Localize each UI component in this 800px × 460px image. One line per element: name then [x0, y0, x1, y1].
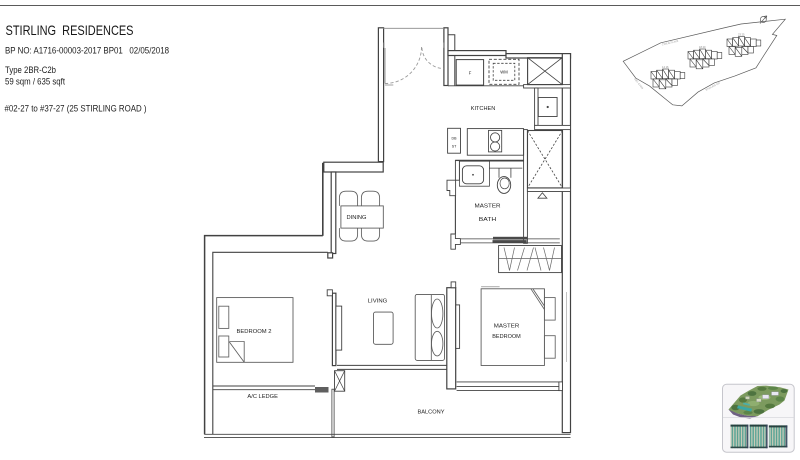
svg-text:MEI CHIN: MEI CHIN: [633, 77, 644, 90]
svg-text:BEDROOM 2: BEDROOM 2: [237, 329, 272, 335]
svg-text:BEDROOM: BEDROOM: [492, 334, 521, 340]
svg-text:KITCHEN: KITCHEN: [471, 106, 496, 112]
svg-text:STIRLING RD: STIRLING RD: [705, 81, 721, 92]
svg-text:STIRLING RESIDENCES: STIRLING RESIDENCES: [6, 22, 134, 38]
svg-text:DB: DB: [452, 137, 458, 141]
svg-text:59 sqm / 635 sqft: 59 sqm / 635 sqft: [5, 77, 65, 88]
svg-text:#02-27 to #37-27 (25 STIRLING: #02-27 to #37-27 (25 STIRLING ROAD ): [5, 104, 147, 115]
svg-text:A/C LEDGE: A/C LEDGE: [247, 394, 278, 400]
svg-text:Type 2BR-C2b: Type 2BR-C2b: [5, 65, 56, 76]
svg-text:LIVING: LIVING: [368, 298, 388, 304]
svg-text:ST: ST: [452, 145, 457, 149]
svg-text:18 20: 18 20: [699, 45, 706, 49]
svg-text:BALCONY: BALCONY: [418, 409, 445, 415]
svg-text:MASTER: MASTER: [494, 324, 520, 330]
svg-text:C'WEALTH AVE: C'WEALTH AVE: [661, 39, 679, 47]
svg-text:BP NO: A1716-00003-2017 BP01: BP NO: A1716-00003-2017 BP01 02/05/2018: [5, 46, 169, 57]
svg-text:WM: WM: [500, 70, 508, 75]
svg-text:BATH: BATH: [479, 217, 497, 223]
svg-text:F: F: [469, 71, 472, 76]
svg-text:MASTER: MASTER: [475, 204, 501, 210]
svg-text:DINING: DINING: [347, 215, 367, 221]
svg-text:14 16: 14 16: [662, 65, 669, 69]
svg-text:23 25: 23 25: [738, 32, 745, 36]
